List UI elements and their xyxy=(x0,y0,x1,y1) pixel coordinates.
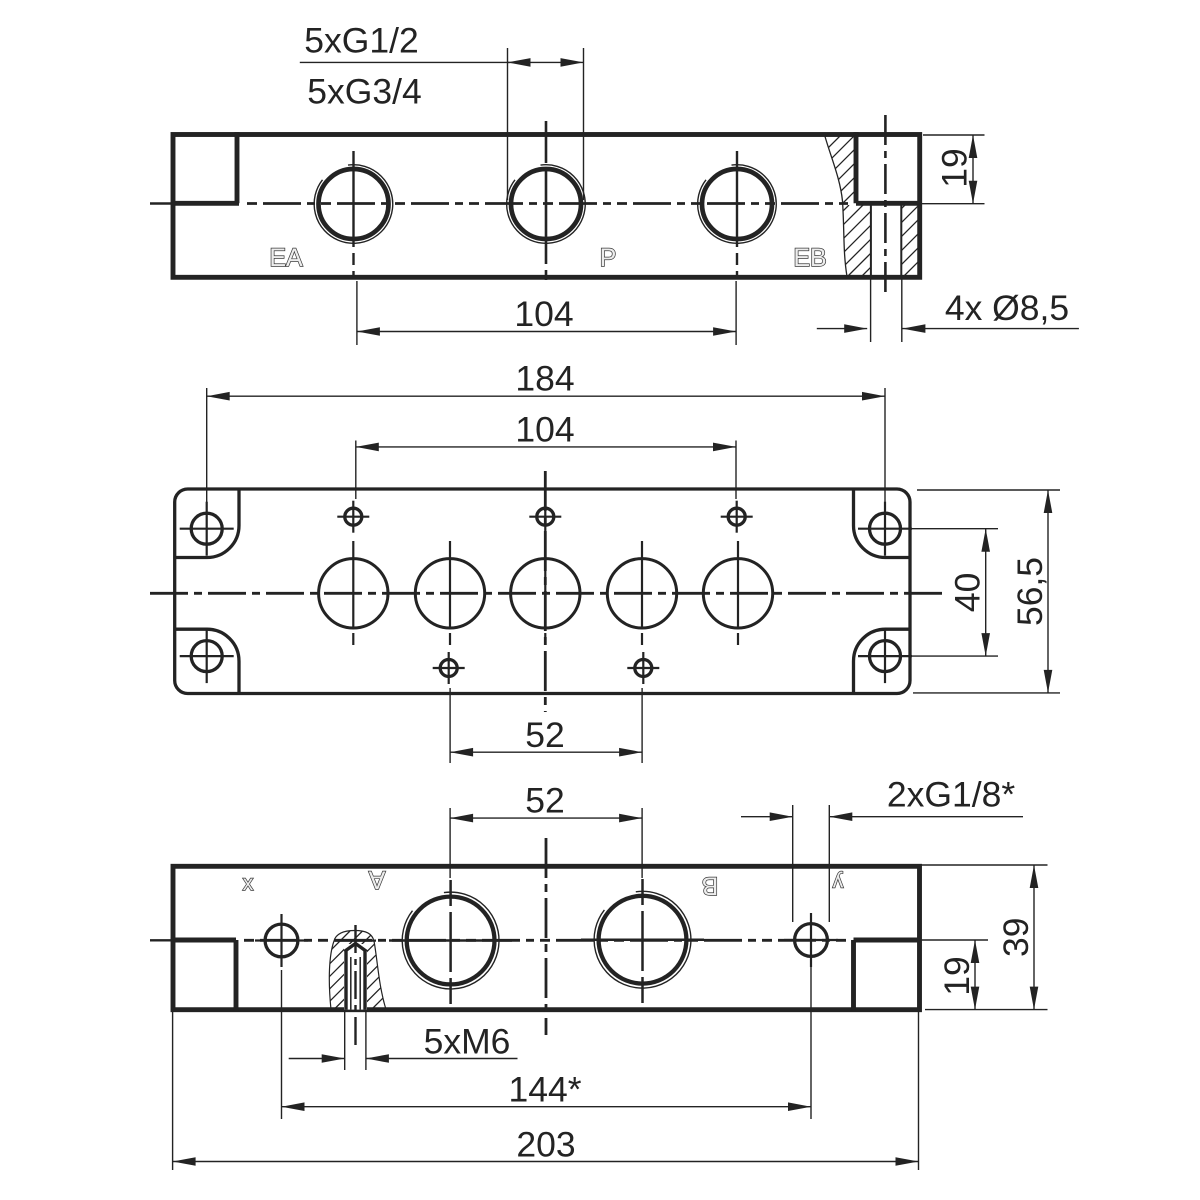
svg-text:A: A xyxy=(368,866,385,894)
svg-text:5xG3/4: 5xG3/4 xyxy=(307,72,421,112)
svg-text:144*: 144* xyxy=(508,1070,581,1110)
svg-text:104: 104 xyxy=(514,294,573,334)
svg-text:184: 184 xyxy=(515,359,574,399)
svg-text:203: 203 xyxy=(516,1125,575,1165)
svg-text:52: 52 xyxy=(525,715,565,755)
svg-text:52: 52 xyxy=(525,781,565,821)
svg-text:P: P xyxy=(600,244,617,272)
svg-text:19: 19 xyxy=(935,148,975,188)
svg-text:B: B xyxy=(702,872,719,900)
svg-text:19: 19 xyxy=(937,956,977,996)
svg-text:y: y xyxy=(832,871,843,894)
svg-text:56,5: 56,5 xyxy=(1010,557,1050,626)
svg-text:EB: EB xyxy=(793,244,826,272)
svg-text:40: 40 xyxy=(948,573,988,613)
svg-text:4x Ø8,5: 4x Ø8,5 xyxy=(945,288,1069,328)
svg-text:5xM6: 5xM6 xyxy=(424,1022,511,1062)
svg-text:2xG1/8*: 2xG1/8* xyxy=(887,775,1015,815)
svg-text:x: x xyxy=(243,872,254,895)
svg-text:5xG1/2: 5xG1/2 xyxy=(304,21,418,61)
svg-text:39: 39 xyxy=(996,918,1036,958)
svg-text:EA: EA xyxy=(269,244,303,272)
svg-text:104: 104 xyxy=(515,410,574,450)
